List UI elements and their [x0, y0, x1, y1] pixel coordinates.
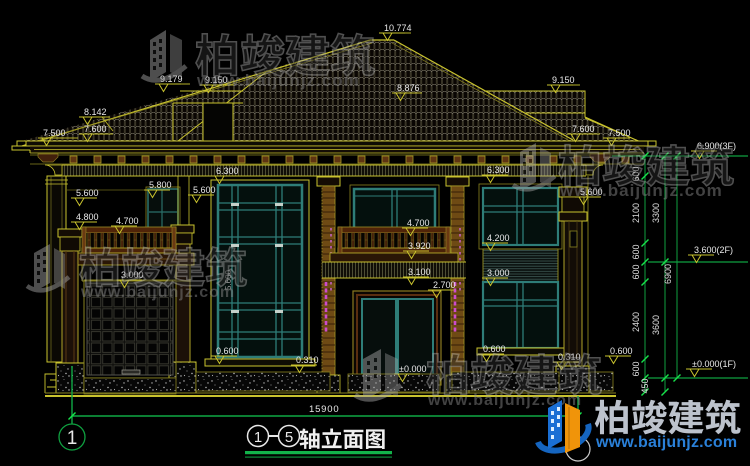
svg-text:5.800: 5.800 — [149, 180, 172, 190]
svg-text:2.700: 2.700 — [433, 280, 456, 290]
svg-text:0.310: 0.310 — [296, 355, 319, 365]
svg-text:600: 600 — [631, 244, 641, 259]
svg-text:7.600: 7.600 — [572, 124, 595, 134]
svg-text:3300: 3300 — [651, 203, 661, 223]
svg-text:3.000: 3.000 — [487, 268, 510, 278]
svg-text:8.876: 8.876 — [397, 83, 420, 93]
svg-text:2400: 2400 — [631, 312, 641, 332]
svg-text:6.300: 6.300 — [216, 166, 239, 176]
svg-text:5.600: 5.600 — [76, 188, 99, 198]
svg-text:www.baijunjz.com: www.baijunjz.com — [196, 71, 360, 90]
svg-text:www.baijunjz.com: www.baijunjz.com — [595, 434, 737, 451]
svg-text:0.600: 0.600 — [610, 346, 633, 356]
svg-text:3.100: 3.100 — [408, 267, 431, 277]
svg-text:7.500: 7.500 — [608, 128, 631, 138]
svg-text:4.700: 4.700 — [407, 218, 430, 228]
svg-text:15900: 15900 — [309, 404, 339, 415]
svg-text:www.baijunjz.com: www.baijunjz.com — [559, 181, 723, 200]
svg-text:1: 1 — [254, 429, 262, 446]
svg-text:1: 1 — [67, 428, 78, 449]
svg-text:4.800: 4.800 — [76, 212, 99, 222]
svg-text:10.774: 10.774 — [384, 23, 412, 33]
svg-text:2100: 2100 — [631, 203, 641, 223]
svg-text:0.600: 0.600 — [483, 344, 506, 354]
svg-text:4.700: 4.700 — [116, 216, 139, 226]
svg-text:450: 450 — [640, 378, 650, 393]
svg-text:±0.000: ±0.000 — [399, 364, 426, 374]
svg-text:0.600: 0.600 — [216, 346, 239, 356]
svg-text:9.150: 9.150 — [552, 75, 575, 85]
svg-text:600: 600 — [631, 361, 641, 376]
svg-text:7.600: 7.600 — [84, 124, 107, 134]
svg-text:±0.000(1F): ±0.000(1F) — [692, 359, 736, 369]
svg-text:5.600: 5.600 — [193, 185, 216, 195]
svg-text:8.142: 8.142 — [84, 107, 107, 117]
svg-text:6900: 6900 — [663, 264, 673, 284]
svg-text:4.200: 4.200 — [487, 233, 510, 243]
svg-text:6.300: 6.300 — [487, 165, 510, 175]
svg-text:3.600(2F): 3.600(2F) — [694, 245, 733, 255]
svg-text:3.920: 3.920 — [408, 241, 431, 251]
svg-text:600: 600 — [631, 264, 641, 279]
svg-text:www.baijunjz.com: www.baijunjz.com — [80, 284, 235, 301]
svg-text:7.500: 7.500 — [43, 128, 66, 138]
svg-text:5: 5 — [285, 429, 293, 446]
svg-text:3600: 3600 — [651, 315, 661, 335]
